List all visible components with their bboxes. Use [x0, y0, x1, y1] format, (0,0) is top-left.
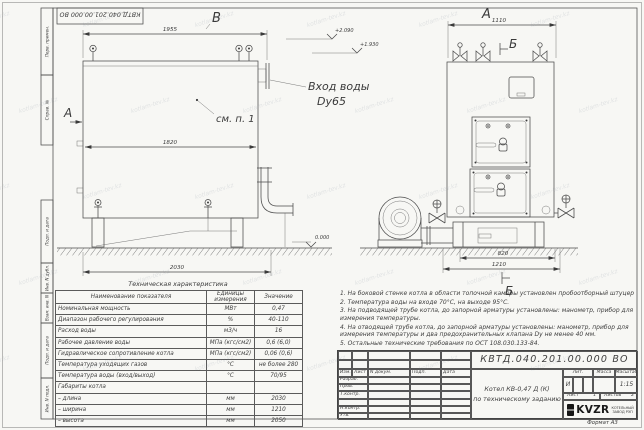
- spec-cell: МПа (кгс/см2): [207, 348, 255, 359]
- spec-cell: 1210: [255, 404, 303, 415]
- spec-cell: [207, 382, 255, 393]
- top-stamp-number: КВТД.040.201.00.000 ВО: [60, 10, 141, 17]
- col-lit: Лит.: [563, 369, 593, 377]
- dim-1820: 1820: [163, 140, 178, 146]
- spec-row: Температура воды (вход/выход)°С70/95: [56, 371, 303, 382]
- sign-cell: [441, 384, 471, 391]
- sign-cell: [368, 377, 410, 384]
- spec-cell: %: [207, 315, 255, 326]
- rev-cell: [368, 360, 410, 369]
- boiler-side-view: В Вход воды Dy65 см. п. 1 А: [63, 11, 379, 276]
- title-block: Изм. Лист N докум. Подп. Дата Разраб. Пр…: [337, 350, 637, 419]
- spec-header-cell: Единицы измерения: [207, 291, 255, 304]
- margin-label-perv: Перв. примен.: [45, 26, 50, 57]
- spec-header-cell: Наименование показателя: [56, 291, 207, 304]
- dim-1110: 1110: [492, 18, 507, 24]
- spec-table-head: Наименование показателяЕдиницы измерения…: [56, 291, 303, 304]
- spec-row: Диапазон рабочего регулирования%40-110: [56, 315, 303, 326]
- top-valve-icon: [90, 45, 252, 61]
- elev-1930: +1.930: [360, 42, 379, 48]
- sign-cell: [410, 391, 441, 398]
- kvzr-logo-subtitle: КОТЕЛЬНЫЙ ЗАВОД РЭП: [611, 406, 633, 415]
- col-masshtab: Масштаб: [615, 369, 638, 377]
- drawing-sheet: Перв. примен. Справ. № Подп. и дата Инв.…: [0, 0, 644, 430]
- section-b-top-label: Б: [509, 37, 517, 51]
- spec-row: Гидравлическое сопротивление котлаМПа (к…: [56, 348, 303, 359]
- spec-cell: 70/95: [255, 371, 303, 382]
- spec-cell: Диапазон рабочего регулирования: [56, 315, 207, 326]
- spec-cell: 0,6 (6,0): [255, 337, 303, 348]
- rev-cell: [441, 360, 471, 369]
- lit-cell: [583, 377, 593, 393]
- sign-cell: [410, 384, 441, 391]
- col-dokum: N докум.: [368, 369, 410, 377]
- rev-cell: [410, 351, 441, 360]
- note-3: 3. На подводящей трубе котла, до запорно…: [340, 307, 636, 322]
- spec-cell: не более 280: [255, 359, 303, 370]
- sign-cell: [441, 391, 471, 398]
- drain-valve-icon: [94, 200, 212, 219]
- spec-table-body: Номинальная мощностьМВт0,47Диапазон рабо…: [56, 304, 303, 427]
- col-podp: Подп.: [410, 369, 441, 377]
- side-valve-left: [429, 200, 445, 223]
- margin-label-podp2: Подп. и дата: [45, 336, 50, 365]
- spec-cell: – высота: [56, 415, 207, 426]
- row-tkontr: Т.контр.: [338, 391, 368, 398]
- format-label: Формат А3: [568, 420, 637, 426]
- rev-cell: [338, 351, 352, 360]
- spec-row: Температура уходящих газов°Сне более 280: [56, 359, 303, 370]
- spec-row: – длинамм2030: [56, 393, 303, 404]
- sign-cell: [410, 413, 441, 420]
- rev-cell: [352, 351, 368, 360]
- spec-cell: Расход воды: [56, 326, 207, 337]
- spec-cell: °С: [207, 371, 255, 382]
- product-name-line2: по техническому заданию: [473, 395, 561, 404]
- col-data: Дата: [441, 369, 471, 377]
- note-1: 1. На боковой стенке котла в области топ…: [340, 290, 636, 298]
- spec-row: Номинальная мощностьМВт0,47: [56, 304, 303, 315]
- spec-cell: – длина: [56, 393, 207, 404]
- spec-header-cell: Значение: [255, 291, 303, 304]
- sign-cell: [410, 406, 441, 413]
- col-list: Лист: [352, 369, 368, 377]
- view-a-arrow-label: А: [63, 106, 72, 120]
- upper-door: [472, 117, 530, 167]
- note-2: 2. Температура воды на входе 70°С, на вы…: [340, 299, 636, 307]
- rev-cell: [352, 360, 368, 369]
- dim-2030: 2030: [170, 265, 185, 271]
- spec-cell: Габариты котла: [56, 382, 207, 393]
- sheets-label: Листов: [604, 394, 621, 399]
- sign-cell: [441, 406, 471, 413]
- spec-cell: Температура воды (вход/выход): [56, 371, 207, 382]
- sign-cell: [368, 391, 410, 398]
- spec-table: Наименование показателяЕдиницы измерения…: [55, 290, 303, 427]
- sheets-cell: Листов 2: [600, 393, 638, 400]
- row-nkontr: Н.контр.: [338, 406, 368, 413]
- col-massa: Масса: [593, 369, 615, 377]
- margin-label-podp1: Подп. и дата: [45, 217, 50, 246]
- spec-cell: мм: [207, 393, 255, 404]
- doc-number: КВТД.040.201.00.000 ВО: [471, 351, 638, 369]
- sign-cell: [441, 399, 471, 406]
- rev-cell: [441, 351, 471, 360]
- sign-cell: [368, 406, 410, 413]
- lower-door: [470, 169, 530, 217]
- sign-cell: [441, 377, 471, 384]
- rev-cell: [368, 351, 410, 360]
- spec-cell: 2030: [255, 393, 303, 404]
- logo-sub-line2: ЗАВОД РЭП: [611, 410, 633, 414]
- sign-cell: [368, 413, 410, 420]
- water-inlet-flange: [258, 63, 306, 89]
- spec-cell: °С: [207, 359, 255, 370]
- margin-label-vzam: Взам. инв. N: [45, 295, 50, 321]
- scale-value: 1:15: [615, 377, 638, 393]
- lit-cell: [573, 377, 583, 393]
- spec-cell: 2050: [255, 415, 303, 426]
- sheets-total: 2: [631, 394, 634, 399]
- inlet-dn-label: Dy65: [317, 95, 346, 108]
- spec-cell: 40-110: [255, 315, 303, 326]
- spec-cell: 0,47: [255, 304, 303, 315]
- spec-cell: Номинальная мощность: [56, 304, 207, 315]
- product-name: Котел КВ-0,47 Д (К) по техническому зада…: [471, 369, 563, 420]
- kvzr-logo-icon: [567, 404, 574, 416]
- margin-label-inv-dubl: Инв. N дубл.: [45, 265, 50, 291]
- ground-hatching: [57, 248, 578, 255]
- view-b-label: В: [212, 11, 221, 26]
- rev-cell: [338, 360, 352, 369]
- spec-cell: Гидравлическое сопротивление котла: [56, 348, 207, 359]
- spec-cell: МВт: [207, 304, 255, 315]
- spec-cell: Рабочее давление воды: [56, 337, 207, 348]
- spec-row: – высотамм2050: [56, 415, 303, 426]
- row-blank: [338, 399, 368, 406]
- spec-row: Расход водым3/ч16: [56, 326, 303, 337]
- spec-row: Габариты котла: [56, 382, 303, 393]
- dim-1210: 1210: [492, 262, 507, 268]
- spec-cell: 0,06 (0,6): [255, 348, 303, 359]
- sheet-number: 1: [593, 394, 596, 399]
- spec-row: – ширинамм1210: [56, 404, 303, 415]
- side-valve-right: [554, 195, 574, 218]
- dim-1955: 1955: [163, 27, 178, 33]
- sign-cell: [368, 399, 410, 406]
- elevation-marks: +2.090 +1.930 0.000: [286, 28, 379, 247]
- spec-cell: мм: [207, 415, 255, 426]
- spec-cell: МПа (кгс/см2): [207, 337, 255, 348]
- rev-cell: [410, 360, 441, 369]
- row-prov: Пров.: [338, 384, 368, 391]
- spec-cell: мм: [207, 404, 255, 415]
- sign-cell: [368, 384, 410, 391]
- spec-cell: – ширина: [56, 404, 207, 415]
- row-razrab: Разраб.: [338, 377, 368, 384]
- spec-cell: м3/ч: [207, 326, 255, 337]
- technical-notes: 1. На боковой стенке котла в области топ…: [340, 290, 636, 349]
- sign-cell: [410, 377, 441, 384]
- margin-label-sprav: Справ. №: [45, 99, 50, 120]
- flue-elbow: [257, 167, 293, 247]
- callout-see-note: см. п. 1: [216, 114, 255, 125]
- fan-blower: [378, 197, 453, 247]
- spec-table-wrap: Наименование показателяЕдиницы измерения…: [55, 290, 302, 427]
- lit-value: И: [563, 377, 573, 393]
- sign-cell: [410, 399, 441, 406]
- sheet-label: Лист: [567, 394, 579, 399]
- elev-2090: +2.090: [335, 28, 354, 34]
- base-frame: [453, 222, 544, 247]
- note-5: 5. Остальные технические требования по О…: [340, 340, 636, 348]
- spec-table-title: Техническая характеристика: [55, 280, 301, 288]
- elev-0000: 0.000: [315, 235, 329, 241]
- spec-cell: [255, 382, 303, 393]
- spec-cell: Температура уходящих газов: [56, 359, 207, 370]
- margin-label-inv-podl: Инв. N подл.: [45, 385, 50, 413]
- massa-value: [593, 377, 615, 393]
- row-utv: Утв.: [338, 413, 368, 420]
- view-a-label: А: [481, 7, 491, 22]
- sign-cell: [441, 413, 471, 420]
- inlet-label: Вход воды: [308, 80, 370, 93]
- kvzr-logo-text: KVZR: [576, 405, 609, 416]
- company-logo: KVZR КОТЕЛЬНЫЙ ЗАВОД РЭП: [563, 400, 638, 420]
- sheet-cell: Лист 1: [563, 393, 600, 400]
- spec-row: Рабочее давление водыМПа (кгс/см2)0,6 (6…: [56, 337, 303, 348]
- spec-cell: 16: [255, 326, 303, 337]
- col-izm: Изм.: [338, 369, 352, 377]
- note-4: 4. На отводящей трубе котла, до запорной…: [340, 324, 636, 339]
- product-name-line1: Котел КВ-0,47 Д (К): [484, 385, 549, 394]
